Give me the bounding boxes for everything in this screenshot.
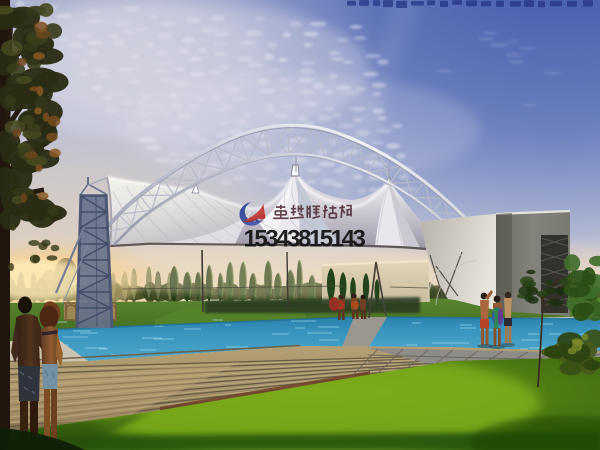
svg-text:15343815143: 15343815143	[244, 226, 366, 253]
